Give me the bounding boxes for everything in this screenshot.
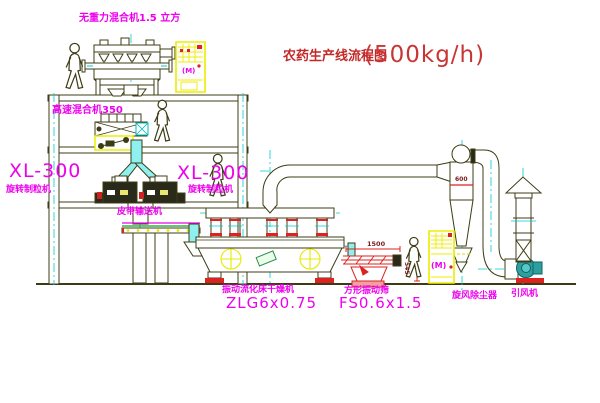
label-granulator-left-model: XL-300: [9, 162, 81, 181]
label-sieve-model: FS0.6x1.5: [339, 296, 422, 311]
label-fan: 引风机: [511, 290, 538, 299]
person-roof: [66, 43, 83, 88]
label-high-speed-mixer: 高速混合机350: [52, 106, 123, 116]
diagram-capacity: (500kg/h): [364, 44, 485, 67]
label-belt-conveyor: 皮带输送机: [117, 208, 162, 217]
dim-sieve-545: 545: [403, 262, 409, 275]
dim-cyclone-600: 600: [455, 177, 468, 183]
diagram-stage: 农药生产线流程图 (500kg/h) 无重力混合机1.5 立方 高速混合机350…: [0, 0, 600, 403]
label-gravity-mixer: 无重力混合机1.5 立方: [79, 14, 180, 24]
motor-mark-cabinet2: (M): [431, 262, 446, 270]
support-columns: [133, 233, 168, 283]
label-granulator-left-name: 旋转制粒机: [6, 186, 51, 195]
cyclone-outlet-pipe: [469, 149, 518, 279]
gravity-mixer-drawing: [82, 38, 175, 96]
control-cabinet-2: [429, 231, 454, 283]
label-granulator-mid-name: 旋转制粒机: [188, 186, 233, 195]
label-granulator-mid-model: XL-300: [177, 164, 249, 183]
person-level2: [155, 100, 170, 141]
label-dryer-model: ZLG6x0.75: [226, 296, 317, 311]
fluid-bed-dryer-drawing: [196, 208, 344, 283]
dryer-stacks: [209, 218, 329, 237]
exhaust-stack-drawing: [506, 177, 541, 262]
granulator-left: [95, 176, 137, 203]
motor-mark-cabinet1: (M): [182, 68, 195, 75]
dim-sieve-1500: 1500: [367, 241, 385, 248]
exhaust-duct: [263, 162, 452, 213]
label-cyclone: 旋风除尘器: [452, 292, 497, 301]
